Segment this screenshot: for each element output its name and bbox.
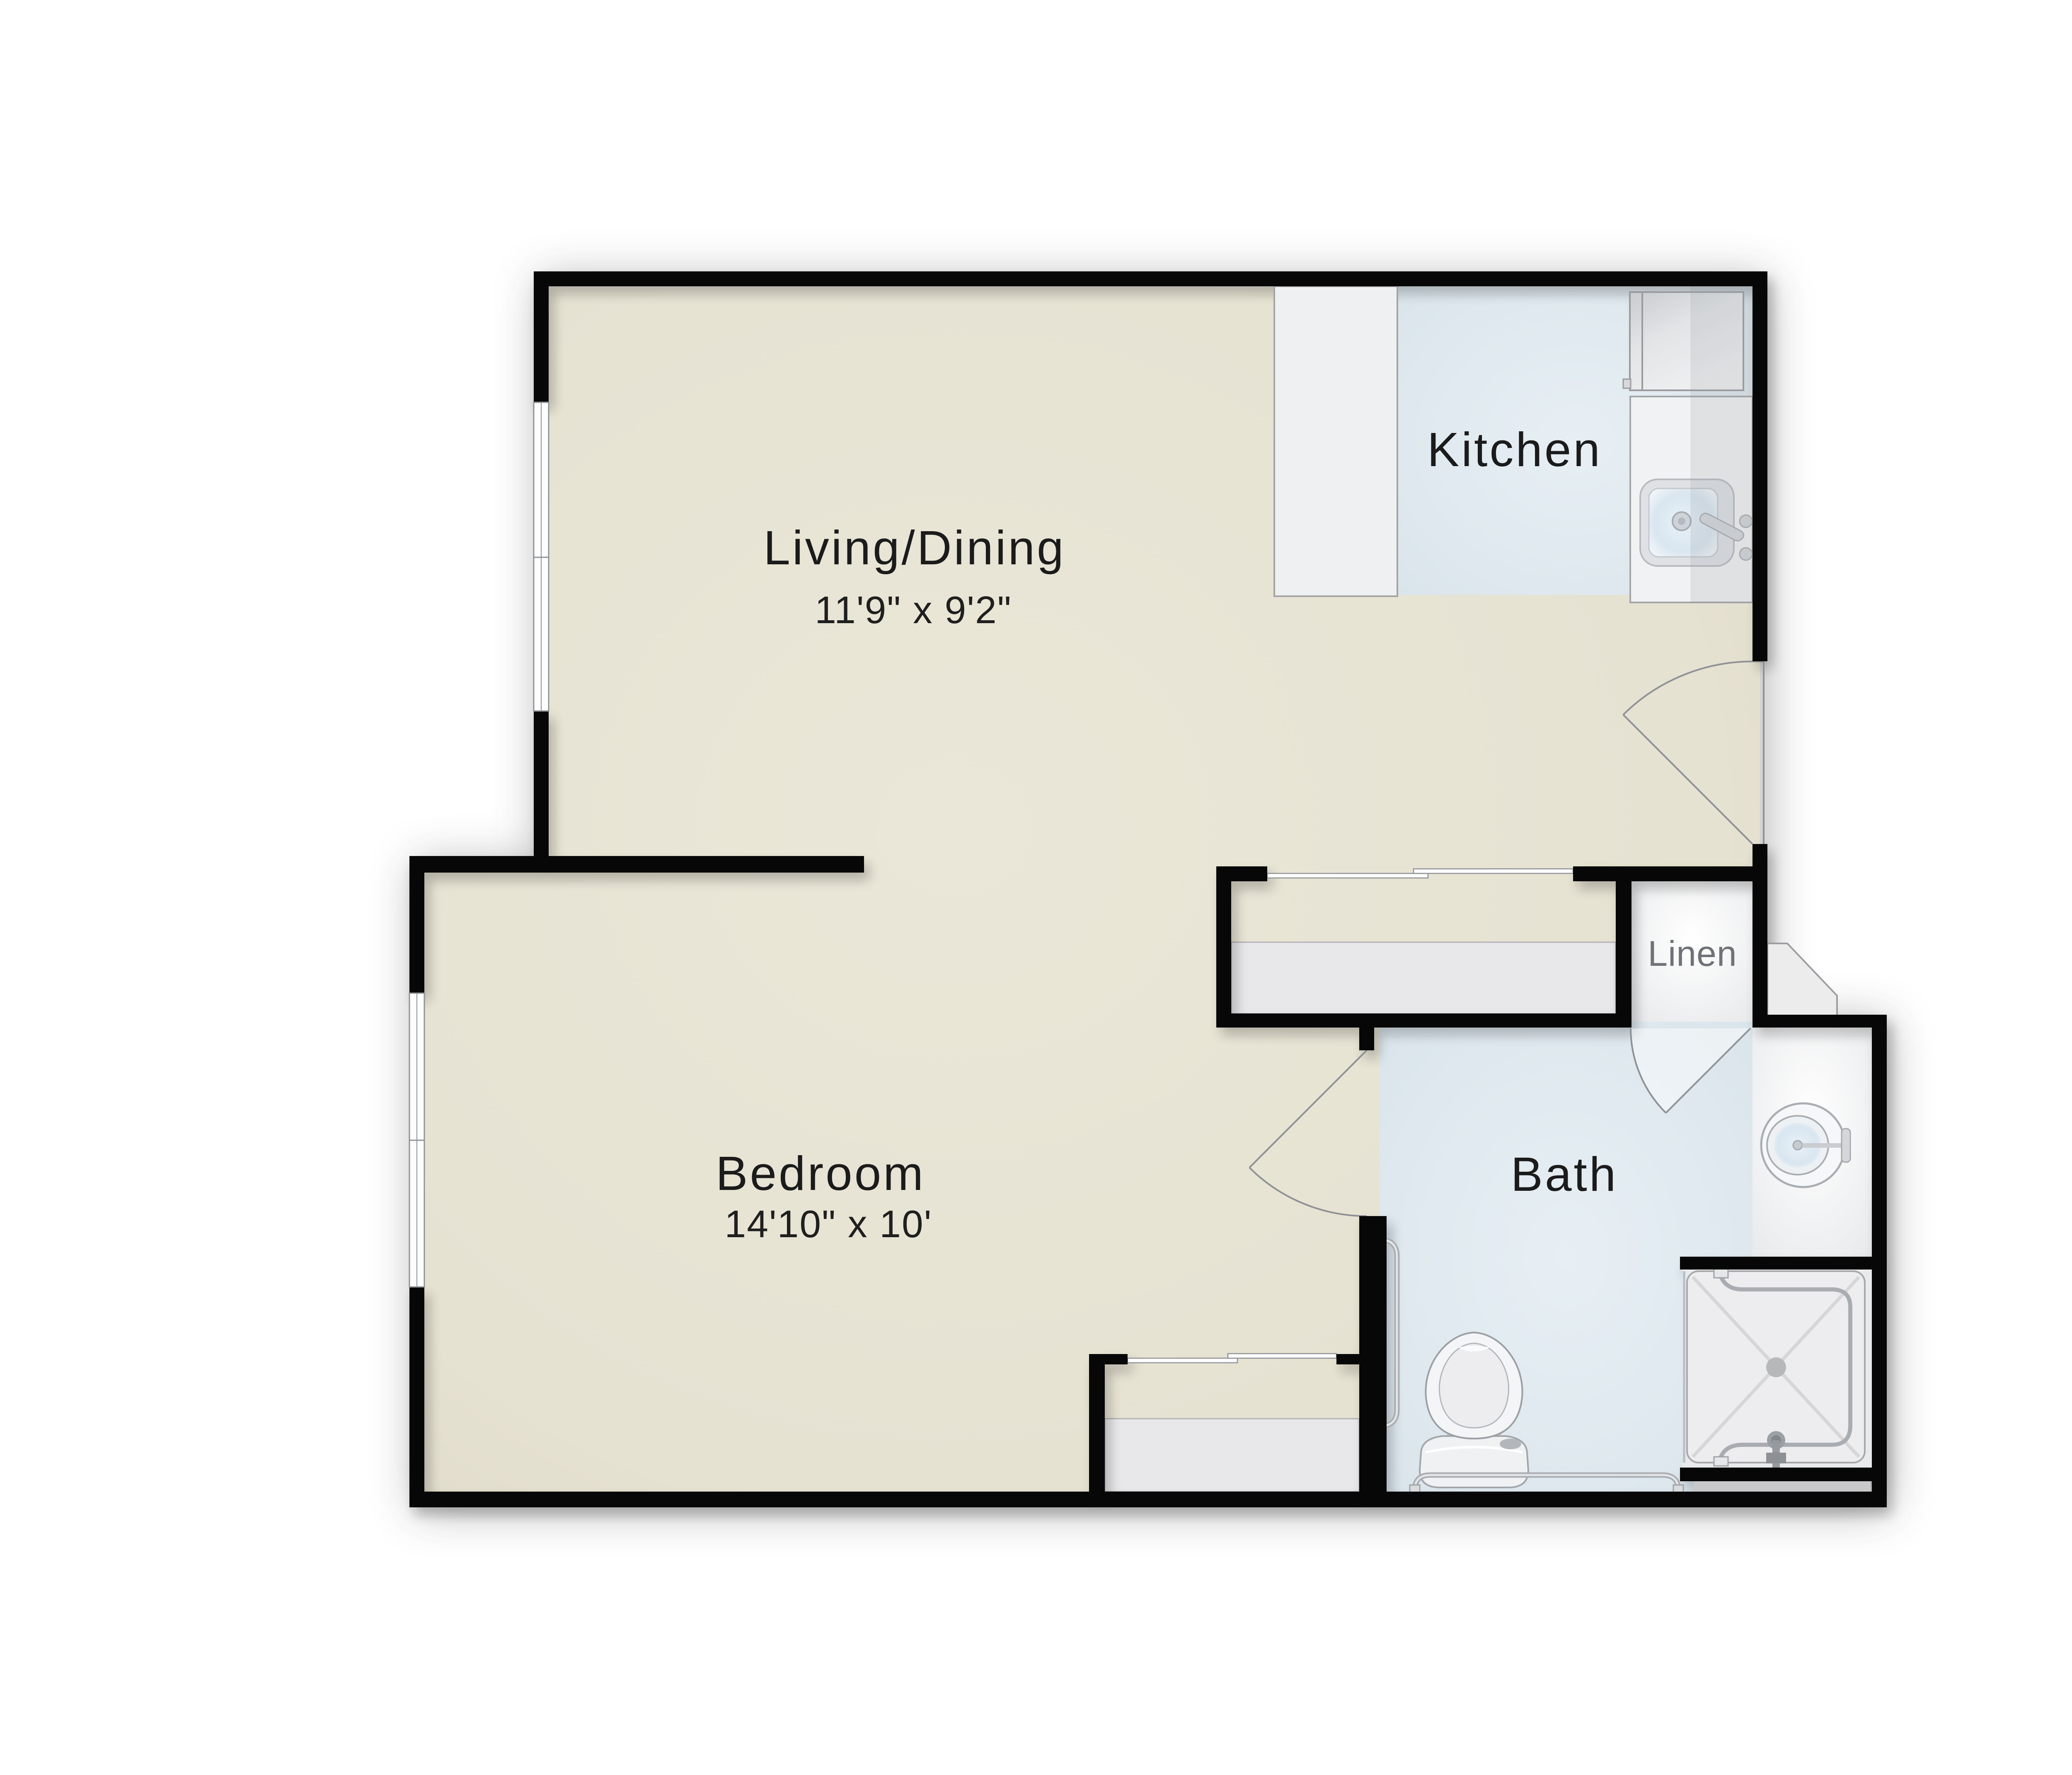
svg-text:Bedroom: Bedroom bbox=[716, 1146, 925, 1200]
svg-text:Linen: Linen bbox=[1648, 934, 1737, 974]
svg-text:11'9" x 9'2": 11'9" x 9'2" bbox=[815, 588, 1012, 631]
svg-text:Living/Dining: Living/Dining bbox=[763, 521, 1065, 575]
svg-text:Bath: Bath bbox=[1511, 1147, 1618, 1201]
svg-text:Kitchen: Kitchen bbox=[1427, 423, 1602, 476]
svg-text:14'10" x 10': 14'10" x 10' bbox=[724, 1202, 932, 1245]
